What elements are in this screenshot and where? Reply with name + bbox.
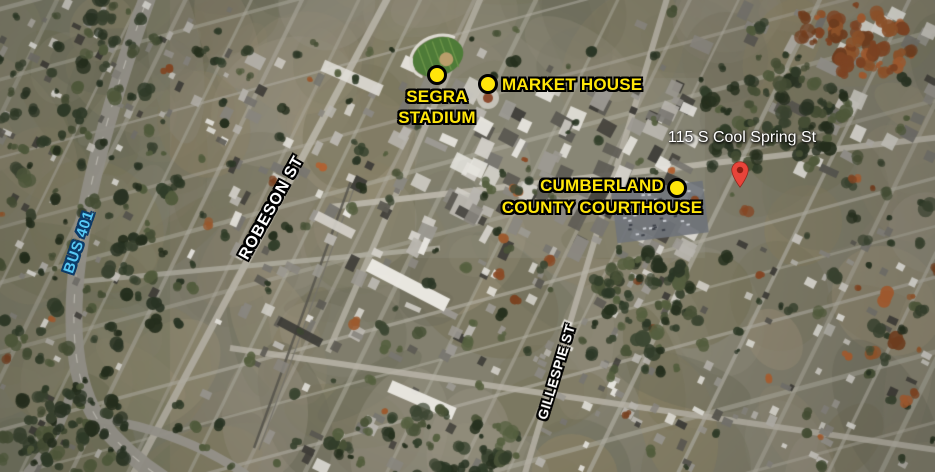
segra-stadium-dot[interactable] xyxy=(427,65,447,85)
address-label: 115 S Cool Spring St xyxy=(668,128,816,148)
location-pin-icon[interactable] xyxy=(731,161,749,193)
segra-stadium-label: SEGRA STADIUM xyxy=(398,86,476,128)
market-house-label: MARKET HOUSE xyxy=(502,74,642,95)
courthouse-label-line2: COUNTY COURTHOUSE xyxy=(502,197,703,219)
market-house-dot[interactable] xyxy=(478,74,498,94)
courthouse-label-line1: CUMBERLAND xyxy=(502,175,703,197)
segra-stadium-label-line2: STADIUM xyxy=(398,107,476,128)
segra-stadium-label-line1: SEGRA xyxy=(398,86,476,107)
satellite-imagery xyxy=(0,0,935,472)
map-viewport[interactable]: SEGRA STADIUM MARKET HOUSE CUMBERLAND CO… xyxy=(0,0,935,472)
courthouse-label: CUMBERLAND COUNTY COURTHOUSE xyxy=(502,175,703,219)
